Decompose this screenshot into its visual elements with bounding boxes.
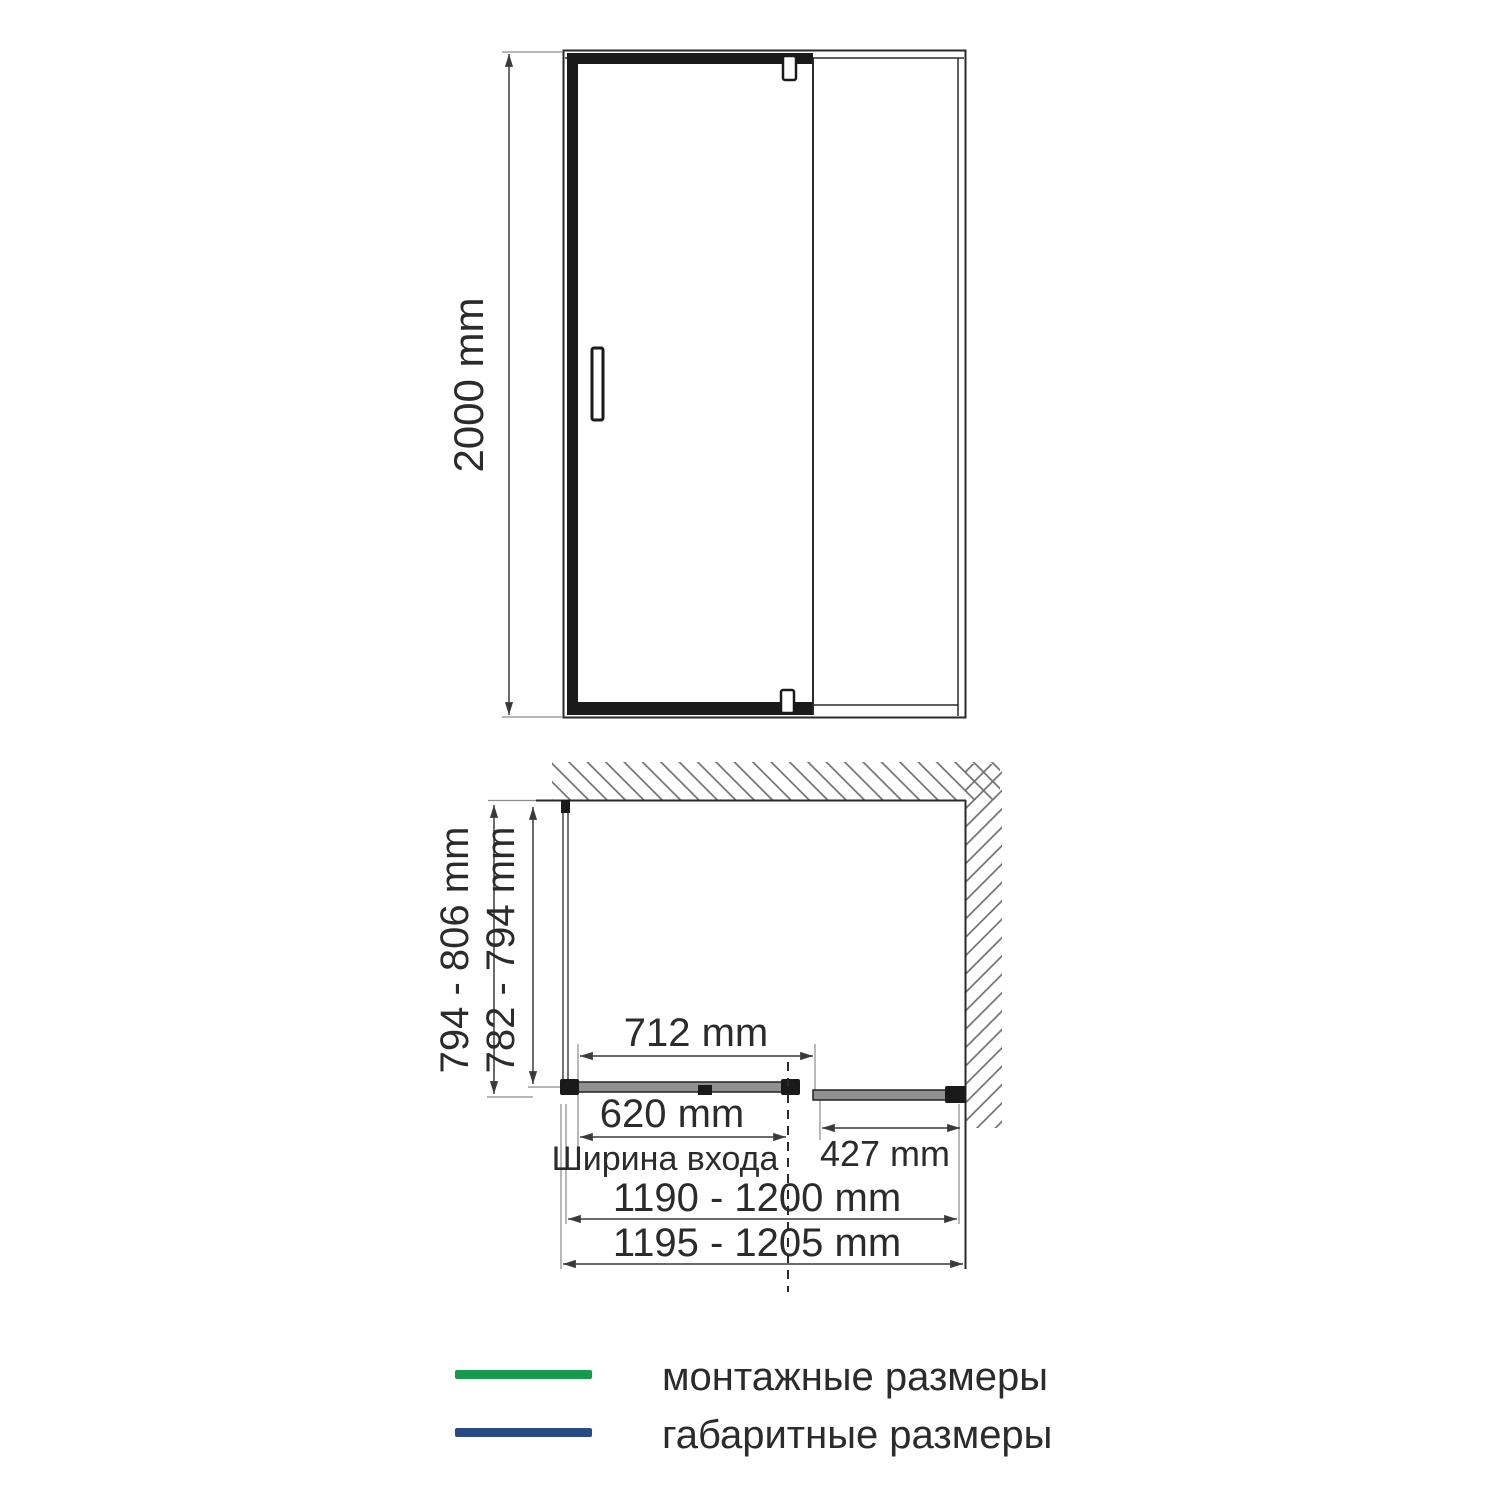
width-mounting-dimension-label: 1190 - 1200 mm xyxy=(613,1176,901,1220)
side-panel-wall-bracket xyxy=(561,800,570,813)
side-panel-line xyxy=(563,801,568,1082)
legend: монтажные размеры габаритные размеры xyxy=(455,1355,1052,1457)
front-frame-outline xyxy=(564,51,966,718)
door-bar xyxy=(565,1082,787,1092)
door-left-bracket xyxy=(560,1079,579,1095)
door-handle xyxy=(592,348,603,420)
legend-swatch-overall xyxy=(455,1428,592,1437)
door-left-wall-profile xyxy=(567,53,578,715)
door-bottom-rail xyxy=(578,702,813,715)
fixed-panel-wall-bracket xyxy=(945,1086,966,1103)
entrance-width-caption: Ширина входа xyxy=(552,1140,779,1178)
depth-mounting-dimension-label: 782 - 794 mm xyxy=(479,827,523,1074)
entrance-width-dimension-label: 620 mm xyxy=(600,1092,745,1136)
height-dimension-label: 2000 mm xyxy=(445,297,492,472)
shower-door-dimension-diagram: 2000 mm 794 - 806 mm 782 - 794 mm xyxy=(0,0,1500,1500)
wall-hatching-top xyxy=(552,762,1000,800)
top-hinge xyxy=(783,56,796,80)
diagram-canvas: 2000 mm 794 - 806 mm 782 - 794 mm xyxy=(0,0,1500,1500)
door-top-rail xyxy=(567,53,813,64)
wall-hatching-right xyxy=(965,764,1002,1128)
fixed-panel-bar xyxy=(813,1090,954,1100)
plan-view: 794 - 806 mm 782 - 794 mm 712 mm 620 mm … xyxy=(433,762,1002,1292)
depth-overall-dimension-label: 794 - 806 mm xyxy=(433,827,477,1074)
legend-label-mounting: монтажные размеры xyxy=(662,1355,1048,1399)
width-overall-dimension-label: 1195 - 1205 mm xyxy=(613,1221,901,1265)
legend-label-overall: габаритные размеры xyxy=(662,1413,1052,1457)
fixed-panel-width-dimension-label: 427 mm xyxy=(820,1133,950,1174)
front-elevation-view: 2000 mm xyxy=(445,51,966,718)
bottom-hinge xyxy=(781,690,794,713)
door-panel-width-dimension-label: 712 mm xyxy=(624,1011,769,1055)
door-pivot-bracket xyxy=(781,1079,800,1095)
legend-swatch-mounting xyxy=(455,1370,592,1379)
